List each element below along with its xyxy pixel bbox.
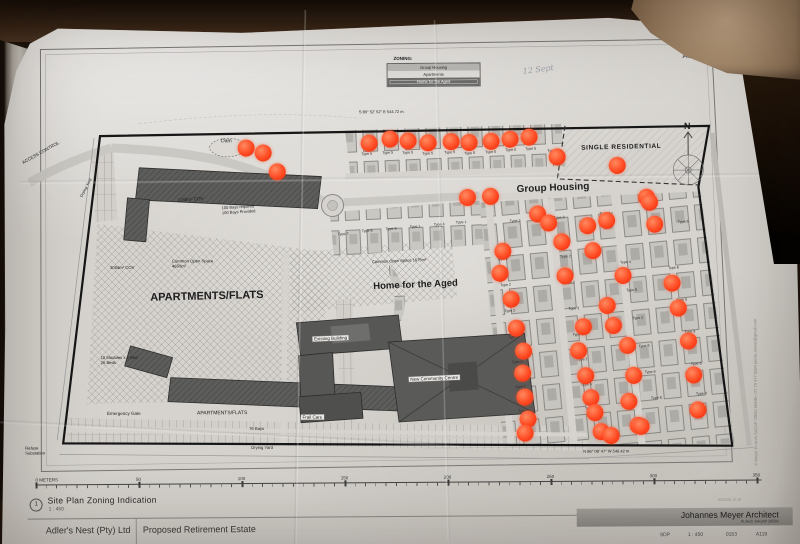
- red-marker-dot: [516, 389, 533, 406]
- red-marker-dot: [502, 131, 519, 148]
- red-marker-dot: [494, 243, 511, 260]
- unit-type-label: Type 6: [668, 265, 679, 270]
- plan-label: 1180m² COV: [177, 196, 203, 203]
- red-marker-dot: [521, 129, 538, 146]
- plan-label: Emergency Gate: [107, 411, 141, 417]
- unit-type-label: Type 5: [485, 150, 496, 155]
- red-marker-dot: [361, 135, 378, 152]
- red-marker-dot: [670, 299, 687, 316]
- red-marker-dot: [482, 188, 499, 205]
- unit-type-label: Type 6: [626, 288, 637, 293]
- plan-label: APARTMENTS/FLATS: [150, 289, 264, 305]
- unit-type-label: Type 1: [456, 220, 467, 225]
- red-marker-dot: [584, 242, 601, 259]
- red-marker-dot: [514, 365, 531, 382]
- unit-type-label: Type 6: [678, 219, 689, 224]
- red-marker-dot: [517, 425, 534, 442]
- red-marker-dot: [605, 317, 622, 334]
- red-marker-dot: [255, 144, 272, 161]
- red-marker-dot: [625, 367, 642, 384]
- unit-type-label: Type 7: [338, 232, 349, 237]
- zoning-legend: ZONING: Group Housing Apartments Home fo…: [386, 55, 480, 87]
- unit-type-label: Type 2: [504, 309, 515, 314]
- legend-item-home-for-aged: Home for the Aged: [388, 77, 480, 86]
- unit-type-label: Type 5: [505, 148, 516, 153]
- red-marker-dot: [269, 163, 286, 180]
- red-marker-dot: [633, 418, 650, 435]
- unit-type-label: Type 6: [362, 229, 373, 234]
- red-marker-dot: [689, 401, 706, 418]
- plan-label: New Community Centre: [409, 375, 460, 382]
- unit-type-label: Type 8: [512, 360, 523, 365]
- red-marker-dot: [641, 194, 658, 211]
- plan-label: Drying Yard: [79, 178, 93, 199]
- unit-type-label: Type 9: [696, 391, 707, 396]
- red-marker-dot: [570, 342, 587, 359]
- red-marker-dot: [459, 189, 476, 206]
- red-marker-dot: [508, 320, 525, 337]
- unit-type-label: Type 2: [500, 283, 511, 288]
- red-marker-dot: [540, 214, 557, 231]
- unit-type-label: Type 3: [568, 306, 579, 311]
- unit-type-label: Type 4: [620, 260, 631, 265]
- unit-type-label: Type 2: [632, 316, 643, 321]
- red-marker-dot: [577, 367, 594, 384]
- photo-of-site-plan: DamACCESS CONTROLDrying Yard1180m² COV10…: [0, 0, 800, 544]
- red-marker-dot: [609, 157, 626, 174]
- red-marker-dot: [680, 332, 697, 349]
- plan-label: Drying Yard: [251, 446, 273, 451]
- unit-type-label: Type 4: [434, 222, 445, 227]
- plan-label: Frail Care: [301, 415, 324, 420]
- plan-label: 76 Bays: [249, 427, 264, 432]
- plan-label: Common Open Space 4650m²: [172, 259, 214, 269]
- unit-type-label: Type 5: [382, 150, 393, 155]
- plan-label: 18 Modules x 2 Bed 26 Beds: [101, 356, 138, 366]
- red-marker-dot: [598, 212, 615, 229]
- plan-label: Common Open Space 1675m²: [372, 258, 426, 265]
- red-marker-dot: [382, 131, 399, 148]
- plan-label: Refuse Substation: [25, 446, 45, 456]
- plan-label: S 89° 52' 52" E 544.72 m: [359, 110, 404, 115]
- unit-type-label: Type 5: [464, 151, 475, 156]
- red-marker-dot: [553, 233, 570, 250]
- red-marker-dot: [603, 427, 620, 444]
- red-marker-dot: [575, 318, 592, 335]
- plan-label: APARTMENTS/FLATS: [197, 411, 247, 417]
- plan-label: Home for the Aged: [373, 278, 458, 293]
- unit-type-label: Type 5: [444, 150, 455, 155]
- red-marker-dot: [646, 216, 663, 233]
- plan-label: 100 Bays required 100 Bays Provided: [222, 204, 256, 215]
- plan-label: Group Housing: [516, 181, 589, 196]
- red-marker-dot: [619, 337, 636, 354]
- red-marker-dot: [579, 217, 596, 234]
- unit-type-label: Type 6: [651, 396, 662, 401]
- red-marker-dot: [420, 134, 437, 151]
- red-marker-dot: [515, 343, 532, 360]
- unit-type-label: Type 6: [386, 226, 397, 231]
- red-marker-dot: [620, 393, 637, 410]
- red-marker-dot: [549, 148, 566, 165]
- legend-box: Group Housing Apartments Home for the Ag…: [387, 62, 481, 87]
- unit-type-label: Type 8: [645, 370, 656, 375]
- unit-type-label: Type 1: [410, 224, 421, 229]
- red-marker-dot: [556, 267, 573, 284]
- legend-title: ZONING:: [393, 55, 480, 61]
- red-marker-dot: [664, 275, 681, 292]
- red-marker-dot: [503, 291, 520, 308]
- red-marker-dot: [400, 132, 417, 149]
- plan-label: Dam: [221, 139, 232, 145]
- unit-type-label: Type 5: [422, 151, 433, 156]
- unit-type-label: Type 9: [639, 344, 650, 349]
- unit-type-label: Type 5: [525, 146, 536, 151]
- unit-type-label: Type 3: [510, 219, 521, 224]
- drawing-sheet: DamACCESS CONTROLDrying Yard1180m² COV10…: [0, 0, 800, 544]
- plan-label: N 86° 08' 47" W 546.42 m: [583, 449, 629, 454]
- unit-type-label: Type 6: [691, 361, 702, 366]
- plan-label: N: [684, 121, 691, 132]
- red-marker-dot: [483, 133, 500, 150]
- red-marker-dot: [461, 134, 478, 151]
- plan-label: ACCESS CONTROL: [21, 140, 60, 165]
- unit-type-label: Type 2: [560, 254, 571, 259]
- plan-label: 3084m² COV: [110, 266, 134, 271]
- red-marker-dot: [443, 133, 460, 150]
- unit-type-label: Type 5: [402, 150, 413, 155]
- red-marker-dot: [586, 404, 603, 421]
- red-marker-dot: [491, 265, 508, 282]
- red-marker-dot: [685, 366, 702, 383]
- red-marker-dot: [599, 297, 616, 314]
- plan-label: Existing Building: [312, 335, 348, 342]
- plan-label: SINGLE RESIDENTIAL: [581, 143, 661, 153]
- red-marker-dot: [238, 140, 255, 157]
- red-marker-dot: [614, 267, 631, 284]
- unit-type-label: Type 5: [361, 152, 372, 157]
